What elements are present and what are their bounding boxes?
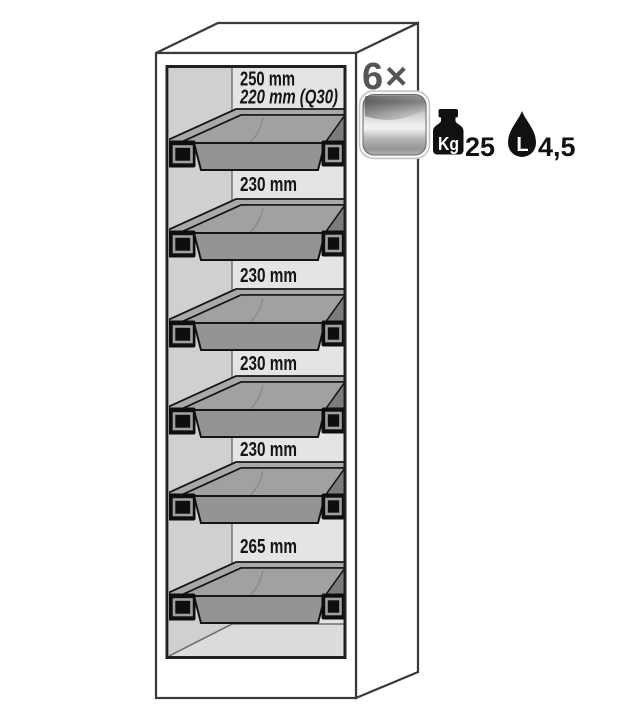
diagram-page: 250 mm 220 mm (Q30) 230 mm 230 mm 230 mm… xyxy=(0,0,629,718)
cabinet-diagram: 250 mm 220 mm (Q30) 230 mm 230 mm 230 mm… xyxy=(0,0,629,718)
liquid-drop-icon: L xyxy=(508,111,536,157)
section-4-height-label: 230 mm xyxy=(240,353,297,375)
section-3-height-label: 230 mm xyxy=(240,265,297,287)
section-2-height-label: 230 mm xyxy=(240,174,297,196)
volume-unit-label: L xyxy=(516,134,528,156)
weight-unit-label: Kg xyxy=(438,134,459,154)
cabinet-interior: 250 mm 220 mm (Q30) 230 mm 230 mm 230 mm… xyxy=(168,68,345,657)
section-5-height-label: 230 mm xyxy=(240,439,297,461)
weight-value: 25 xyxy=(465,132,495,162)
section-6-height-label: 265 mm xyxy=(240,536,297,558)
legend: 6× Kg 25 L 4,5 xyxy=(360,56,576,162)
volume-value: 4,5 xyxy=(538,132,576,162)
weight-kg-icon: Kg xyxy=(433,109,464,155)
metallic-tray-icon xyxy=(360,91,430,159)
section-1-q30-label: 220 mm (Q30) xyxy=(239,87,338,109)
